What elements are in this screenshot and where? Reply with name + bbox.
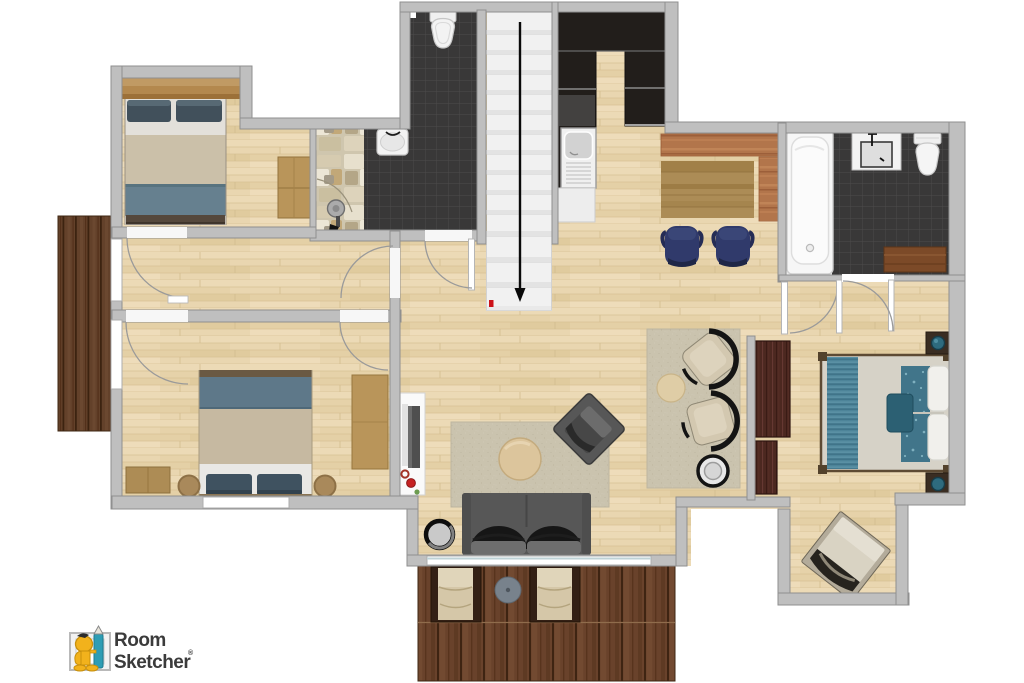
- svg-text:Room: Room: [114, 630, 166, 651]
- svg-text:®: ®: [188, 649, 194, 657]
- svg-text:Sketcher: Sketcher: [114, 652, 191, 673]
